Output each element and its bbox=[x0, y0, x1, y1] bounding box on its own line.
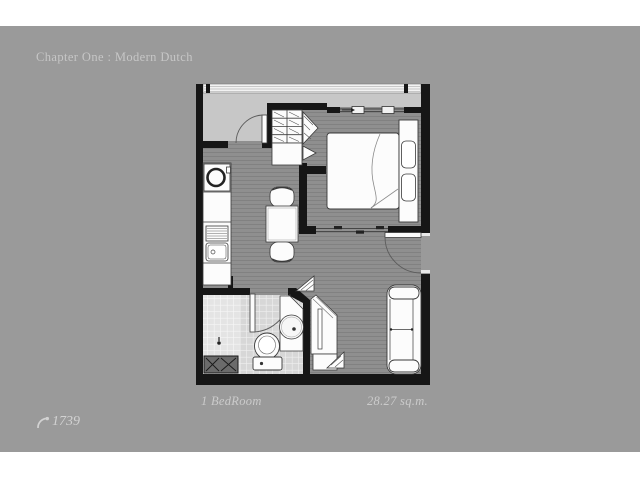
area-label: 28.27 sq.m. bbox=[367, 394, 428, 409]
dining-set bbox=[266, 187, 298, 262]
balcony-window-band bbox=[203, 84, 421, 93]
views-count: 1739 bbox=[52, 414, 80, 430]
kitchen-counter bbox=[203, 163, 231, 285]
threshold bbox=[421, 233, 430, 236]
dining-table bbox=[266, 206, 298, 242]
floor-plan bbox=[190, 78, 438, 392]
page: Chapter One : Modern Dutch bbox=[0, 0, 640, 480]
threshold bbox=[421, 270, 430, 273]
toilet bbox=[253, 333, 282, 370]
bed bbox=[327, 120, 418, 222]
wardrobe bbox=[272, 110, 302, 165]
sofa bbox=[387, 285, 421, 374]
room-type-label: 1 BedRoom bbox=[201, 394, 262, 409]
pillow bbox=[402, 174, 416, 201]
page-title: Chapter One : Modern Dutch bbox=[36, 50, 193, 65]
kitchen-sink bbox=[206, 226, 228, 261]
headboard bbox=[399, 120, 418, 222]
views-counter: 1739 bbox=[36, 414, 80, 430]
photo-area: Chapter One : Modern Dutch bbox=[0, 26, 640, 452]
curved-arrow-icon bbox=[36, 415, 49, 430]
shower-mat bbox=[204, 356, 238, 373]
pillow bbox=[402, 141, 416, 168]
stove bbox=[204, 164, 231, 191]
